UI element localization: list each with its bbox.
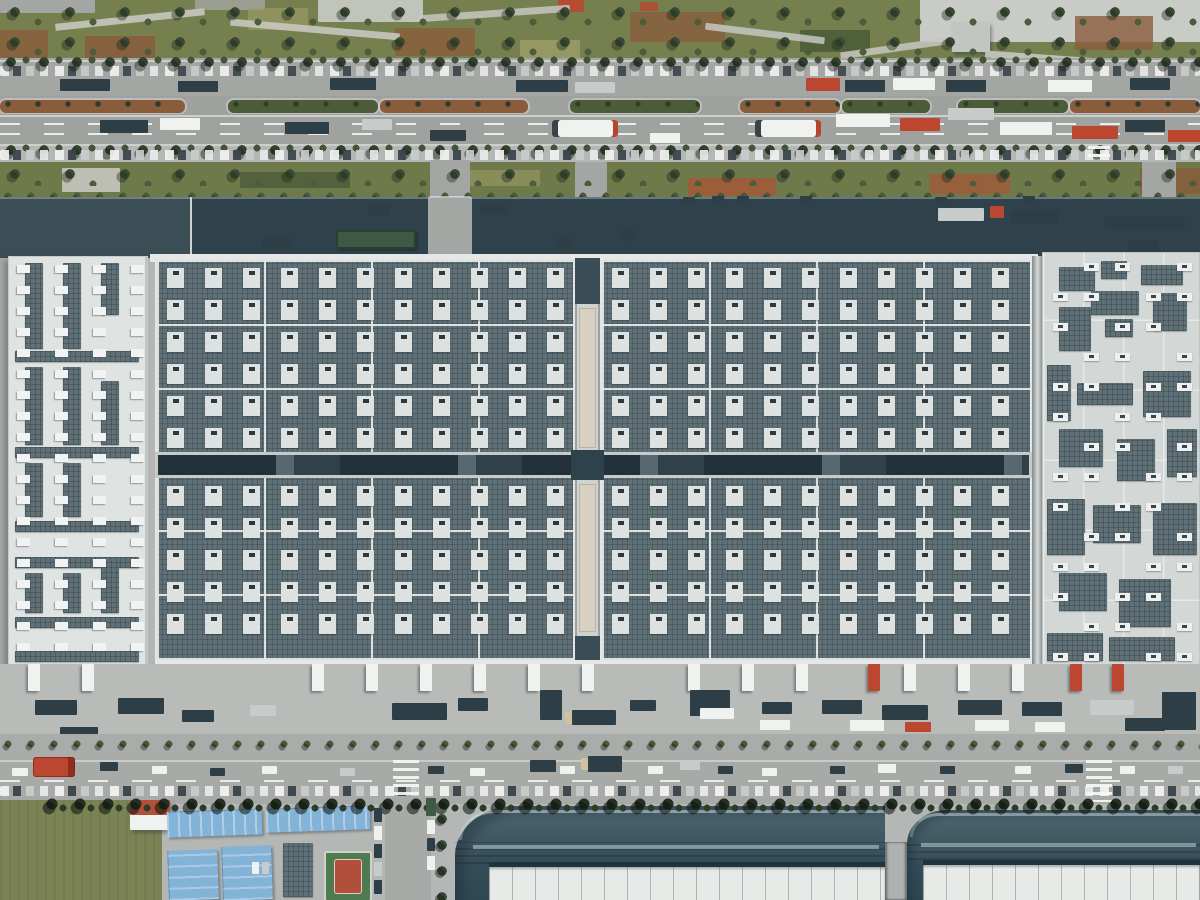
skylight bbox=[954, 614, 971, 634]
skylight bbox=[93, 517, 106, 525]
skylight bbox=[55, 433, 68, 441]
skylight bbox=[1146, 383, 1161, 391]
skylight bbox=[131, 517, 144, 525]
skylight bbox=[205, 300, 222, 320]
car bbox=[374, 880, 382, 894]
skylight bbox=[878, 300, 895, 320]
skylight bbox=[1053, 563, 1068, 571]
east-annex-panels bbox=[1043, 253, 1200, 673]
skylight bbox=[1177, 653, 1192, 661]
skylight bbox=[954, 396, 971, 416]
skylight bbox=[954, 268, 971, 288]
skylight bbox=[319, 550, 336, 570]
skylight bbox=[55, 454, 68, 462]
skylight bbox=[1177, 383, 1192, 391]
skylight bbox=[55, 643, 68, 651]
skylight bbox=[840, 518, 857, 538]
skylight bbox=[281, 550, 298, 570]
skylight bbox=[1177, 533, 1192, 541]
skylight bbox=[395, 486, 412, 506]
skylight bbox=[433, 332, 450, 352]
skylight bbox=[433, 550, 450, 570]
skylight bbox=[167, 332, 184, 352]
skylight bbox=[471, 332, 488, 352]
skylight bbox=[840, 332, 857, 352]
skylight bbox=[17, 328, 30, 336]
skylight bbox=[167, 396, 184, 416]
skylight bbox=[167, 486, 184, 506]
skylight bbox=[1146, 563, 1161, 571]
skylight bbox=[878, 428, 895, 448]
corridor-dark-segment bbox=[575, 258, 600, 304]
skylight bbox=[281, 518, 298, 538]
skylight bbox=[395, 614, 412, 634]
skylight bbox=[17, 412, 30, 420]
white-wall bbox=[923, 865, 1200, 900]
skylight bbox=[764, 300, 781, 320]
skylight bbox=[243, 396, 260, 416]
skylight bbox=[433, 428, 450, 448]
skylight bbox=[281, 268, 298, 288]
skylight bbox=[612, 582, 629, 602]
skylight bbox=[205, 614, 222, 634]
skylight bbox=[395, 428, 412, 448]
skylight bbox=[916, 364, 933, 384]
skylight bbox=[131, 580, 144, 588]
skylight bbox=[433, 396, 450, 416]
skylight bbox=[992, 486, 1009, 506]
skylight bbox=[764, 614, 781, 634]
skylight bbox=[612, 364, 629, 384]
skylight bbox=[954, 428, 971, 448]
skylight bbox=[764, 428, 781, 448]
skylight bbox=[688, 332, 705, 352]
skylight bbox=[1146, 593, 1161, 601]
car bbox=[374, 826, 382, 840]
skylight bbox=[1115, 413, 1130, 421]
skylight bbox=[916, 396, 933, 416]
skylight bbox=[243, 332, 260, 352]
skylight bbox=[17, 559, 30, 567]
skylight bbox=[395, 582, 412, 602]
skylight bbox=[840, 396, 857, 416]
solar-panel-strip bbox=[15, 651, 139, 662]
skylight bbox=[802, 486, 819, 506]
skylight bbox=[243, 486, 260, 506]
skylight bbox=[650, 428, 667, 448]
skylight bbox=[1084, 623, 1099, 631]
skylight bbox=[471, 614, 488, 634]
skylight bbox=[509, 486, 526, 506]
skylight bbox=[205, 518, 222, 538]
skylight bbox=[433, 364, 450, 384]
skylight bbox=[1146, 293, 1161, 301]
skylight bbox=[650, 364, 667, 384]
skylight bbox=[726, 428, 743, 448]
skylight bbox=[726, 396, 743, 416]
solar-panel-patch bbox=[1143, 371, 1191, 417]
skylight bbox=[547, 300, 564, 320]
skylight bbox=[688, 268, 705, 288]
skylight bbox=[612, 428, 629, 448]
skylight bbox=[1146, 653, 1161, 661]
skylight bbox=[471, 582, 488, 602]
skylight bbox=[1146, 473, 1161, 481]
skylight bbox=[650, 300, 667, 320]
skylight bbox=[93, 265, 106, 273]
skylight bbox=[878, 486, 895, 506]
skylight bbox=[131, 391, 144, 399]
skylight bbox=[1177, 563, 1192, 571]
skylight bbox=[509, 396, 526, 416]
white-wall bbox=[489, 867, 885, 900]
skylight bbox=[916, 300, 933, 320]
skylight bbox=[55, 496, 68, 504]
skylight bbox=[471, 428, 488, 448]
skylight bbox=[131, 496, 144, 504]
skylight bbox=[547, 582, 564, 602]
skylight bbox=[395, 300, 412, 320]
skylight bbox=[471, 396, 488, 416]
skylight bbox=[55, 412, 68, 420]
skylight bbox=[1115, 323, 1130, 331]
access-road-trees bbox=[432, 806, 452, 900]
skylight bbox=[17, 601, 30, 609]
skylight bbox=[612, 300, 629, 320]
skylight bbox=[319, 486, 336, 506]
skylight bbox=[319, 582, 336, 602]
solar-panel-strip bbox=[25, 463, 43, 517]
skylight bbox=[243, 582, 260, 602]
skylight bbox=[840, 364, 857, 384]
skylight bbox=[93, 454, 106, 462]
skylight bbox=[93, 391, 106, 399]
skylight bbox=[802, 518, 819, 538]
skylight bbox=[954, 332, 971, 352]
skylight bbox=[471, 550, 488, 570]
skylight bbox=[878, 614, 895, 634]
solar-panel-strip bbox=[15, 617, 139, 628]
skylight bbox=[17, 433, 30, 441]
skylight bbox=[433, 518, 450, 538]
skylight bbox=[205, 582, 222, 602]
south-hall-west bbox=[455, 806, 885, 900]
solar-roof-block-ne bbox=[600, 258, 1032, 456]
skylight bbox=[131, 454, 144, 462]
skylight bbox=[840, 486, 857, 506]
skylight bbox=[547, 428, 564, 448]
skylight bbox=[840, 300, 857, 320]
skylight bbox=[17, 391, 30, 399]
skylight bbox=[167, 518, 184, 538]
solar-panel-strip bbox=[25, 263, 43, 349]
skylight bbox=[55, 391, 68, 399]
skylight bbox=[878, 550, 895, 570]
skylight bbox=[131, 328, 144, 336]
skylight bbox=[509, 550, 526, 570]
skylight bbox=[131, 622, 144, 630]
solar-panel-strip bbox=[15, 521, 139, 532]
skylight bbox=[1053, 413, 1068, 421]
lane-dashes bbox=[0, 123, 1200, 125]
skylight bbox=[764, 582, 781, 602]
skylight bbox=[1115, 533, 1130, 541]
skylight bbox=[764, 486, 781, 506]
skylight bbox=[1177, 263, 1192, 271]
skylight bbox=[547, 364, 564, 384]
skylight bbox=[243, 550, 260, 570]
skylight bbox=[17, 307, 30, 315]
skylight bbox=[688, 550, 705, 570]
skylight bbox=[764, 396, 781, 416]
skylight bbox=[878, 268, 895, 288]
skylight bbox=[764, 518, 781, 538]
skylight bbox=[1053, 593, 1068, 601]
solar-panel-patch bbox=[1119, 579, 1171, 627]
skylight bbox=[1115, 503, 1130, 511]
skylight bbox=[992, 582, 1009, 602]
skylight bbox=[726, 614, 743, 634]
skylight bbox=[802, 332, 819, 352]
skylight bbox=[395, 518, 412, 538]
skylight bbox=[357, 428, 374, 448]
skylight bbox=[916, 518, 933, 538]
lane-dashes bbox=[0, 133, 1200, 135]
roof-skylight-strip bbox=[473, 845, 879, 849]
skylight bbox=[1177, 443, 1192, 451]
skylight bbox=[55, 286, 68, 294]
skylight bbox=[1053, 473, 1068, 481]
skylight bbox=[802, 268, 819, 288]
skylight bbox=[167, 300, 184, 320]
skylight bbox=[55, 622, 68, 630]
east-annex-roof bbox=[1042, 252, 1200, 672]
skylight bbox=[55, 265, 68, 273]
skylight bbox=[992, 332, 1009, 352]
park-trees bbox=[0, 0, 1200, 56]
skylight bbox=[167, 364, 184, 384]
skylight bbox=[1084, 263, 1099, 271]
skylight bbox=[55, 580, 68, 588]
skylight bbox=[954, 582, 971, 602]
skylight bbox=[471, 300, 488, 320]
skylight bbox=[688, 300, 705, 320]
skylight bbox=[688, 428, 705, 448]
skylight bbox=[764, 268, 781, 288]
skylight bbox=[1084, 533, 1099, 541]
skylight bbox=[281, 428, 298, 448]
skylight bbox=[1084, 353, 1099, 361]
skylight bbox=[547, 614, 564, 634]
skylight bbox=[688, 614, 705, 634]
skylight bbox=[131, 475, 144, 483]
solar-panel-strip bbox=[15, 557, 139, 568]
car bbox=[374, 862, 382, 876]
skylight bbox=[281, 614, 298, 634]
skylight bbox=[726, 582, 743, 602]
skylight bbox=[243, 268, 260, 288]
skylight bbox=[319, 268, 336, 288]
skylight bbox=[726, 486, 743, 506]
skylight bbox=[395, 550, 412, 570]
skylight bbox=[764, 550, 781, 570]
skylight bbox=[840, 550, 857, 570]
skylight bbox=[357, 486, 374, 506]
median-band bbox=[0, 96, 1200, 116]
solar-panel-patch bbox=[1167, 429, 1197, 477]
skylight bbox=[840, 268, 857, 288]
skylight bbox=[726, 550, 743, 570]
skylight bbox=[205, 364, 222, 384]
skylight bbox=[205, 332, 222, 352]
skylight bbox=[726, 518, 743, 538]
lane-line bbox=[0, 115, 1200, 117]
skylight bbox=[547, 332, 564, 352]
skylight bbox=[93, 580, 106, 588]
skylight bbox=[281, 396, 298, 416]
corridor-walkway bbox=[579, 484, 596, 632]
skylight bbox=[878, 332, 895, 352]
skylight bbox=[93, 370, 106, 378]
car bbox=[374, 844, 382, 858]
skylight bbox=[433, 300, 450, 320]
skylight bbox=[764, 332, 781, 352]
corridor-crossing bbox=[571, 450, 604, 480]
skylight bbox=[281, 364, 298, 384]
skylight bbox=[954, 364, 971, 384]
skylight bbox=[131, 307, 144, 315]
skylight bbox=[509, 268, 526, 288]
skylight bbox=[509, 518, 526, 538]
skylight bbox=[17, 454, 30, 462]
skylight bbox=[167, 582, 184, 602]
skylight bbox=[131, 412, 144, 420]
skylight bbox=[1084, 653, 1099, 661]
skylight bbox=[547, 518, 564, 538]
skylight bbox=[433, 268, 450, 288]
skylight bbox=[1115, 593, 1130, 601]
skylight bbox=[433, 486, 450, 506]
skylight bbox=[802, 364, 819, 384]
skylight bbox=[243, 614, 260, 634]
skylight bbox=[802, 614, 819, 634]
dock-yard-left-section bbox=[0, 197, 192, 258]
skylight bbox=[954, 518, 971, 538]
skylight bbox=[1115, 623, 1130, 631]
skylight bbox=[1053, 293, 1068, 301]
skylight bbox=[1177, 353, 1192, 361]
skylight bbox=[612, 614, 629, 634]
skylight bbox=[802, 300, 819, 320]
skylight bbox=[509, 364, 526, 384]
skylight bbox=[471, 364, 488, 384]
lane-dashes bbox=[0, 780, 1200, 782]
skylight bbox=[55, 307, 68, 315]
skylight bbox=[471, 268, 488, 288]
skylight bbox=[650, 582, 667, 602]
skylight bbox=[17, 496, 30, 504]
skylight bbox=[916, 486, 933, 506]
skylight bbox=[840, 582, 857, 602]
skylight bbox=[1053, 653, 1068, 661]
skylight bbox=[1084, 443, 1099, 451]
skylight bbox=[547, 268, 564, 288]
skylight bbox=[1177, 623, 1192, 631]
skylight bbox=[650, 268, 667, 288]
skylight bbox=[650, 518, 667, 538]
skylight bbox=[131, 265, 144, 273]
skylight bbox=[395, 364, 412, 384]
skylight bbox=[650, 332, 667, 352]
solar-roof-block-se bbox=[600, 476, 1032, 662]
skylight bbox=[17, 349, 30, 357]
skylight bbox=[726, 268, 743, 288]
parked-cars-row-2 bbox=[0, 150, 1200, 160]
skylight bbox=[764, 364, 781, 384]
aerial-photo bbox=[0, 0, 1200, 900]
solar-panel-strip bbox=[63, 463, 81, 517]
skylight bbox=[992, 300, 1009, 320]
skylight bbox=[319, 364, 336, 384]
skylight bbox=[509, 614, 526, 634]
skylight bbox=[243, 364, 260, 384]
skylight bbox=[726, 300, 743, 320]
skylight bbox=[131, 538, 144, 546]
skylight bbox=[433, 582, 450, 602]
skylight bbox=[93, 328, 106, 336]
skylight bbox=[395, 396, 412, 416]
skylight bbox=[205, 268, 222, 288]
east-seam bbox=[1032, 256, 1042, 666]
skylight bbox=[992, 518, 1009, 538]
skylight bbox=[357, 582, 374, 602]
skylight bbox=[802, 582, 819, 602]
skylight bbox=[547, 486, 564, 506]
skylight bbox=[547, 396, 564, 416]
skylight bbox=[93, 601, 106, 609]
skylight bbox=[17, 517, 30, 525]
skylight bbox=[1053, 503, 1068, 511]
solar-panel-strip bbox=[15, 447, 139, 458]
skylight bbox=[93, 643, 106, 651]
skylight bbox=[17, 643, 30, 651]
skylight bbox=[650, 486, 667, 506]
skylight bbox=[205, 428, 222, 448]
skylight bbox=[357, 550, 374, 570]
skylight bbox=[319, 396, 336, 416]
skylight bbox=[688, 582, 705, 602]
skylight bbox=[1146, 323, 1161, 331]
skylight bbox=[688, 364, 705, 384]
skylight bbox=[688, 486, 705, 506]
solar-panel-patch bbox=[1109, 637, 1175, 661]
west-annex-roof bbox=[8, 256, 148, 680]
skylight bbox=[93, 622, 106, 630]
skylight bbox=[17, 538, 30, 546]
skylight bbox=[954, 486, 971, 506]
skylight bbox=[131, 643, 144, 651]
skylight bbox=[433, 614, 450, 634]
solar-roof-block-sw bbox=[155, 476, 575, 662]
skylight bbox=[55, 517, 68, 525]
skylight bbox=[205, 550, 222, 570]
skylight bbox=[840, 428, 857, 448]
skylight bbox=[612, 518, 629, 538]
skylight bbox=[17, 580, 30, 588]
west-annex-panels bbox=[9, 257, 149, 681]
skylight bbox=[55, 559, 68, 567]
skylight bbox=[93, 559, 106, 567]
